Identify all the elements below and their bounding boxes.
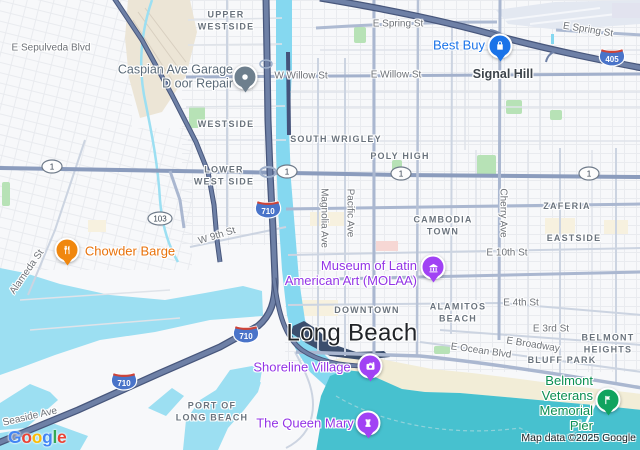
map-attribution: Map data ©2025 Google (521, 432, 636, 444)
flag-icon (603, 395, 614, 406)
route-1-shield: 1 (41, 159, 63, 179)
landmark-pin[interactable] (356, 411, 381, 436)
svg-text:710: 710 (239, 332, 253, 341)
logo-letter: o (21, 427, 31, 447)
generic-place-pin[interactable] (233, 65, 258, 90)
route-1-shield: 1 (578, 166, 600, 186)
shopping-icon (495, 41, 506, 52)
logo-letter: G (8, 427, 21, 447)
svg-text:710: 710 (117, 379, 131, 388)
map-canvas[interactable]: UPPER WESTSIDE WESTSIDE SOUTH WRIGLEY LO… (0, 0, 640, 450)
route-1-shield: 1 (390, 166, 412, 186)
museum-icon (427, 261, 439, 273)
interstate-710-shield: 710 (255, 200, 282, 224)
logo-letter: g (42, 427, 52, 447)
generic-place-icon (240, 72, 251, 83)
camera-icon (364, 360, 376, 372)
museum-pin[interactable] (421, 255, 446, 280)
svg-text:405: 405 (605, 55, 619, 64)
attraction-pin[interactable] (358, 354, 383, 379)
svg-text:103: 103 (153, 215, 167, 224)
restaurant-pin[interactable] (55, 238, 80, 263)
pier-pin[interactable] (596, 388, 621, 413)
svg-text:1: 1 (285, 167, 290, 177)
route-103-shield: 103 (147, 211, 173, 231)
google-logo[interactable]: Google (8, 427, 66, 448)
svg-text:1: 1 (50, 162, 55, 172)
svg-text:1: 1 (587, 169, 592, 179)
interstate-710-shield: 710 (111, 372, 138, 396)
logo-letter: o (32, 427, 42, 447)
interstate-710-shield: 710 (233, 325, 260, 349)
route-1-shield: 1 (276, 164, 298, 184)
interstate-405-shield: 405 (599, 48, 626, 72)
logo-letter: e (57, 427, 66, 447)
castle-icon (363, 418, 374, 429)
shopping-pin[interactable] (488, 34, 513, 59)
restaurant-icon (62, 245, 73, 256)
svg-text:1: 1 (399, 169, 404, 179)
map-geometry (0, 0, 640, 450)
svg-text:710: 710 (261, 207, 275, 216)
